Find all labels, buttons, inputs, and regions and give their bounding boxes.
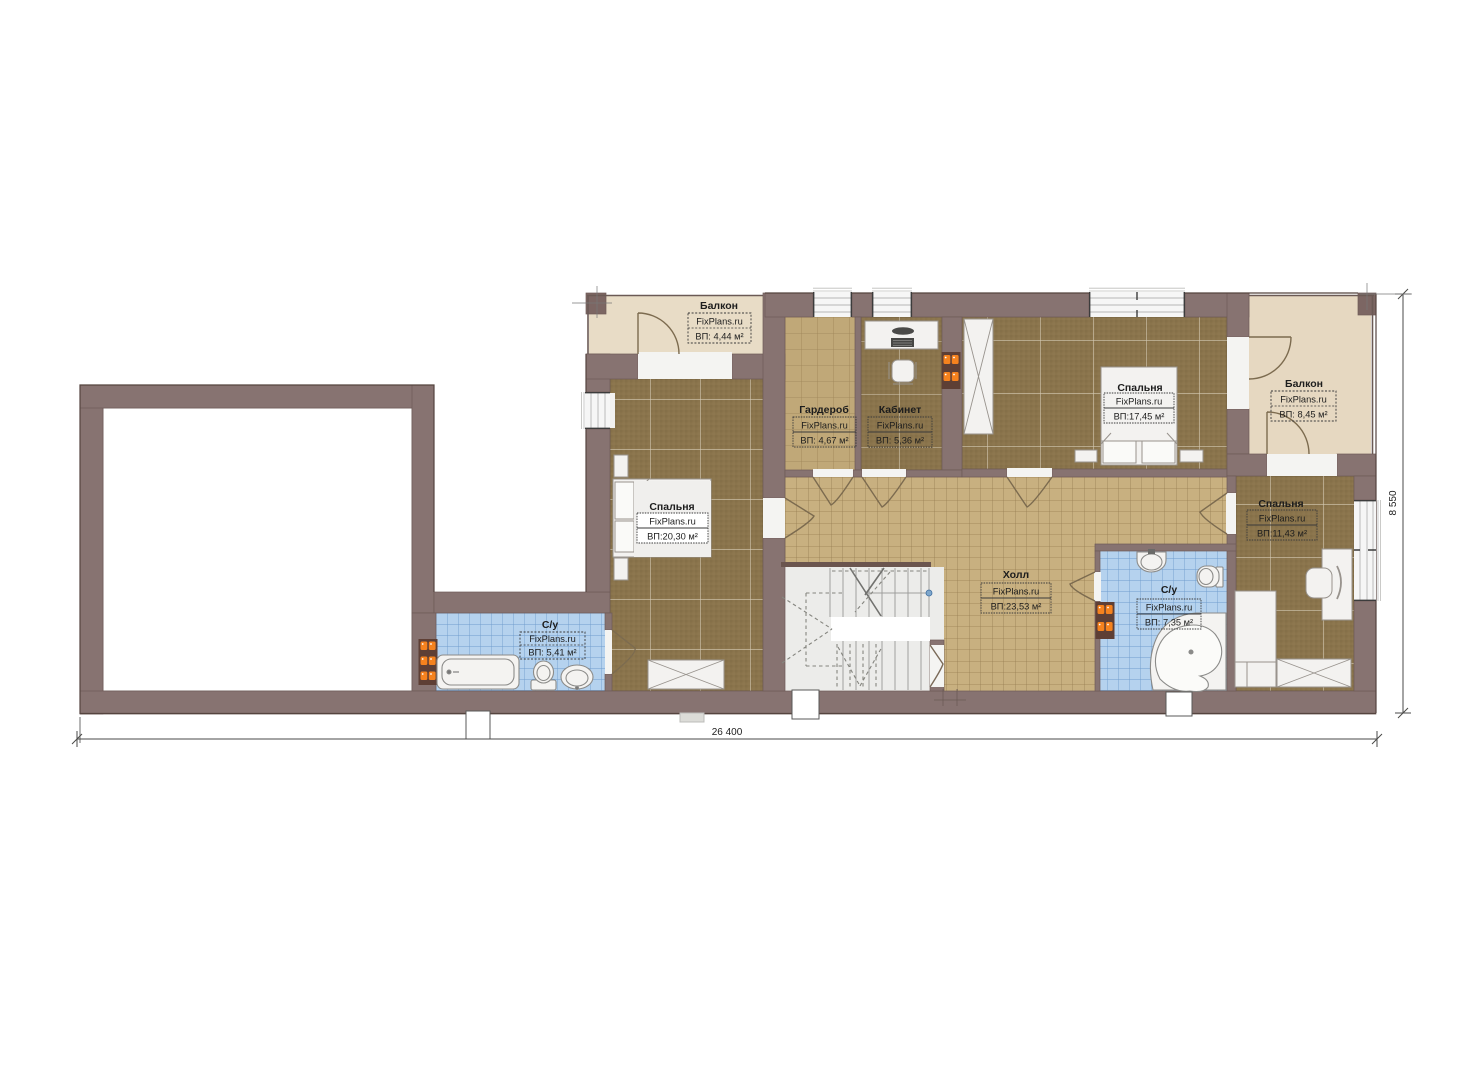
svg-text:FixPlans.ru: FixPlans.ru xyxy=(1116,397,1163,407)
svg-text:FixPlans.ru: FixPlans.ru xyxy=(877,421,924,431)
svg-text:ВП: 5,36 м²: ВП: 5,36 м² xyxy=(876,436,924,446)
svg-text:FixPlans.ru: FixPlans.ru xyxy=(696,317,743,327)
svg-text:ВП:11,43 м²: ВП:11,43 м² xyxy=(1257,529,1307,539)
svg-text:ВП: 5,41 м²: ВП: 5,41 м² xyxy=(528,648,576,658)
svg-text:ВП:20,30 м²: ВП:20,30 м² xyxy=(647,532,698,542)
svg-text:С/у: С/у xyxy=(542,619,559,631)
svg-text:FixPlans.ru: FixPlans.ru xyxy=(1146,603,1193,613)
svg-text:FixPlans.ru: FixPlans.ru xyxy=(1280,395,1327,405)
svg-text:Кабинет: Кабинет xyxy=(879,404,922,416)
svg-text:ВП: 4,44 м²: ВП: 4,44 м² xyxy=(695,332,743,342)
svg-text:FixPlans.ru: FixPlans.ru xyxy=(1259,514,1306,524)
svg-text:Балкон: Балкон xyxy=(1285,378,1323,390)
svg-text:ВП: 7,35 м²: ВП: 7,35 м² xyxy=(1145,618,1193,628)
svg-text:Спальня: Спальня xyxy=(649,501,694,513)
svg-text:ВП:17,45 м²: ВП:17,45 м² xyxy=(1114,412,1165,422)
svg-text:Спальня: Спальня xyxy=(1258,498,1303,510)
svg-text:Гардероб: Гардероб xyxy=(799,404,849,416)
svg-text:Спальня: Спальня xyxy=(1117,382,1162,394)
svg-text:FixPlans.ru: FixPlans.ru xyxy=(801,421,848,431)
svg-text:ВП: 8,45 м²: ВП: 8,45 м² xyxy=(1279,410,1327,420)
svg-text:8 550: 8 550 xyxy=(1388,490,1399,515)
svg-text:FixPlans.ru: FixPlans.ru xyxy=(993,587,1040,597)
svg-text:Балкон: Балкон xyxy=(700,300,738,312)
svg-text:ВП:23,53 м²: ВП:23,53 м² xyxy=(991,602,1042,612)
svg-text:С/у: С/у xyxy=(1161,584,1178,596)
svg-text:FixPlans.ru: FixPlans.ru xyxy=(649,517,696,527)
svg-text:Холл: Холл xyxy=(1003,569,1029,581)
svg-text:26 400: 26 400 xyxy=(712,727,743,738)
svg-text:ВП: 4,67 м²: ВП: 4,67 м² xyxy=(800,436,848,446)
svg-text:FixPlans.ru: FixPlans.ru xyxy=(529,634,576,644)
